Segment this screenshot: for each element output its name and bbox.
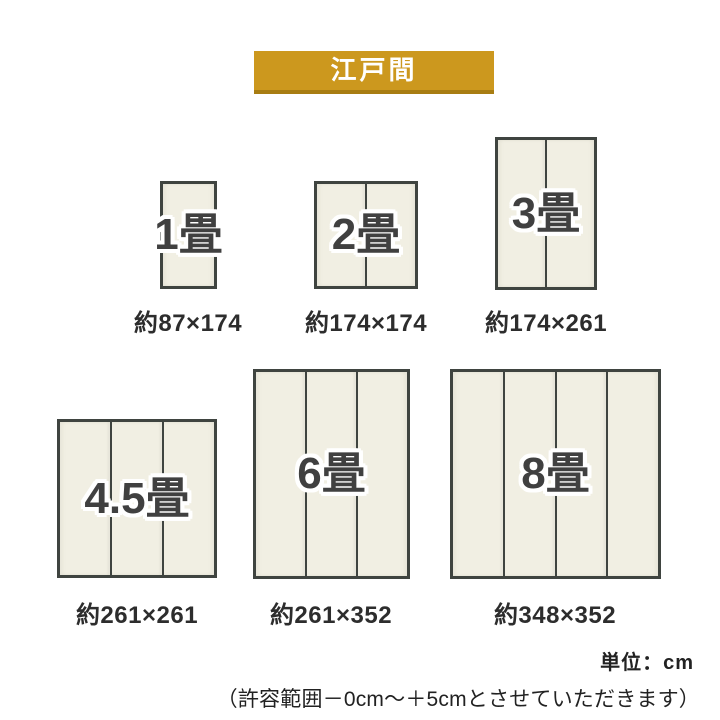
mat-label-2jo: 2畳 xyxy=(332,213,400,257)
unit-note: 単位：cm xyxy=(20,646,700,675)
mat-size-6jo: 約261×352 xyxy=(231,595,431,630)
tatami-mat-4-5jo: 4.5畳 xyxy=(57,419,217,578)
mat-label-1jo: 1畳 xyxy=(154,213,222,257)
mat-size-3jo: 約174×261 xyxy=(446,303,646,338)
mat-size-8jo: 約348×352 xyxy=(455,595,655,630)
panel-divider xyxy=(503,372,505,576)
mat-label-8jo: 8畳 xyxy=(521,452,589,496)
tatami-mat-2jo: 2畳 xyxy=(314,181,418,289)
tatami-size-diagram: 江戸間 1畳 2畳 3畳 約87×174 約174×174 約174×261 4… xyxy=(0,0,720,720)
footer-notes: 単位：cm （許容範囲－0cm～＋5cmとさせていただきます） xyxy=(20,646,700,713)
tatami-mat-8jo: 8畳 xyxy=(450,369,661,579)
mat-label-6jo: 6畳 xyxy=(297,452,365,496)
mat-label-3jo: 3畳 xyxy=(512,192,580,236)
banner-title: 江戸間 xyxy=(330,57,417,85)
size-standard-banner: 江戸間 xyxy=(254,51,494,94)
panel-divider xyxy=(606,372,608,576)
mat-size-4-5jo: 約261×261 xyxy=(37,595,237,630)
mat-size-1jo: 約87×174 xyxy=(88,303,288,338)
tatami-mat-3jo: 3畳 xyxy=(495,137,597,290)
tatami-mat-1jo: 1畳 xyxy=(160,181,217,289)
mat-label-4-5jo: 4.5畳 xyxy=(84,477,189,521)
mat-size-2jo: 約174×174 xyxy=(266,303,466,338)
tolerance-note: （許容範囲－0cm～＋5cmとさせていただきます） xyxy=(20,683,700,713)
tatami-mat-6jo: 6畳 xyxy=(253,369,410,579)
